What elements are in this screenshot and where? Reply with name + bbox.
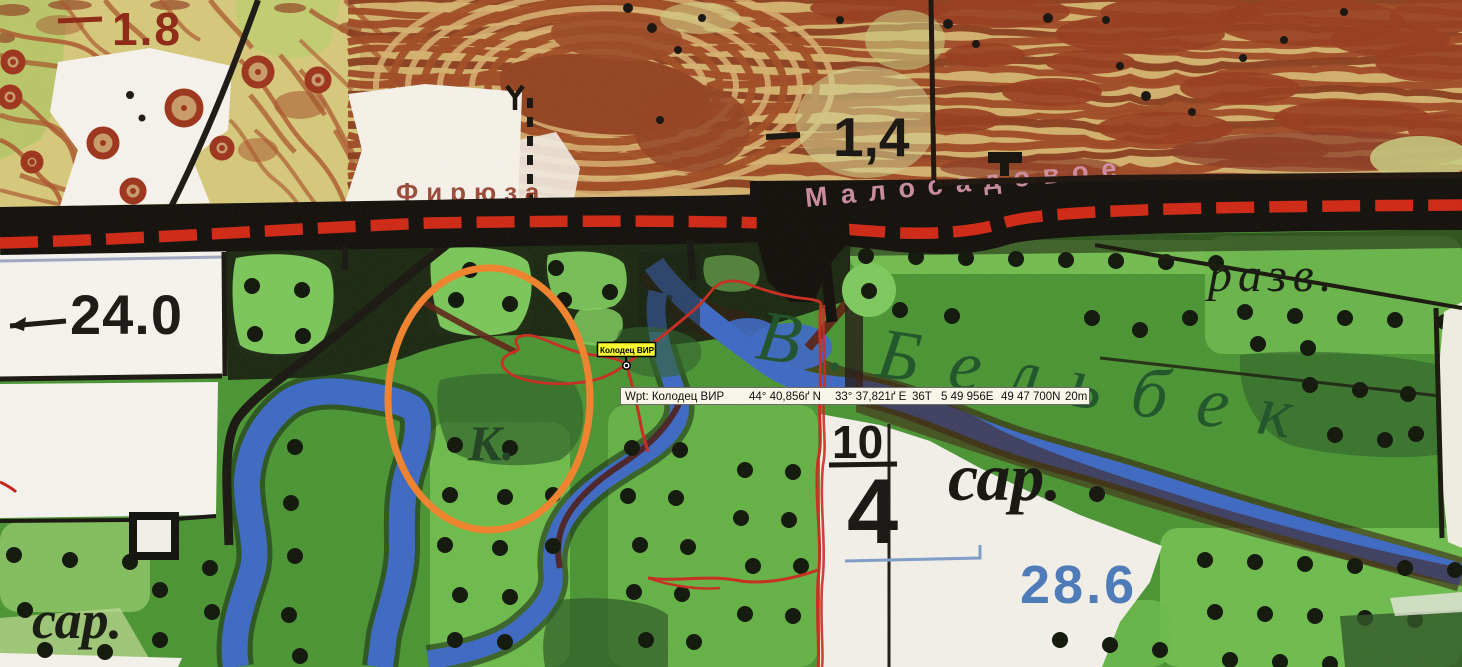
svg-text:36T: 36T <box>912 391 932 403</box>
svg-text:20m: 20m <box>1065 391 1087 403</box>
svg-text:5 49 956E: 5 49 956E <box>941 391 994 403</box>
svg-text:Wpt: Колодец ВИР: Wpt: Колодец ВИР <box>625 391 724 403</box>
svg-text:33° 37,821ґ E: 33° 37,821ґ E <box>835 391 907 403</box>
svg-text:Колодец ВИР: Колодец ВИР <box>600 346 655 355</box>
svg-text:49 47 700N: 49 47 700N <box>1001 391 1060 403</box>
svg-text:44° 40,856ґ N: 44° 40,856ґ N <box>749 391 821 403</box>
